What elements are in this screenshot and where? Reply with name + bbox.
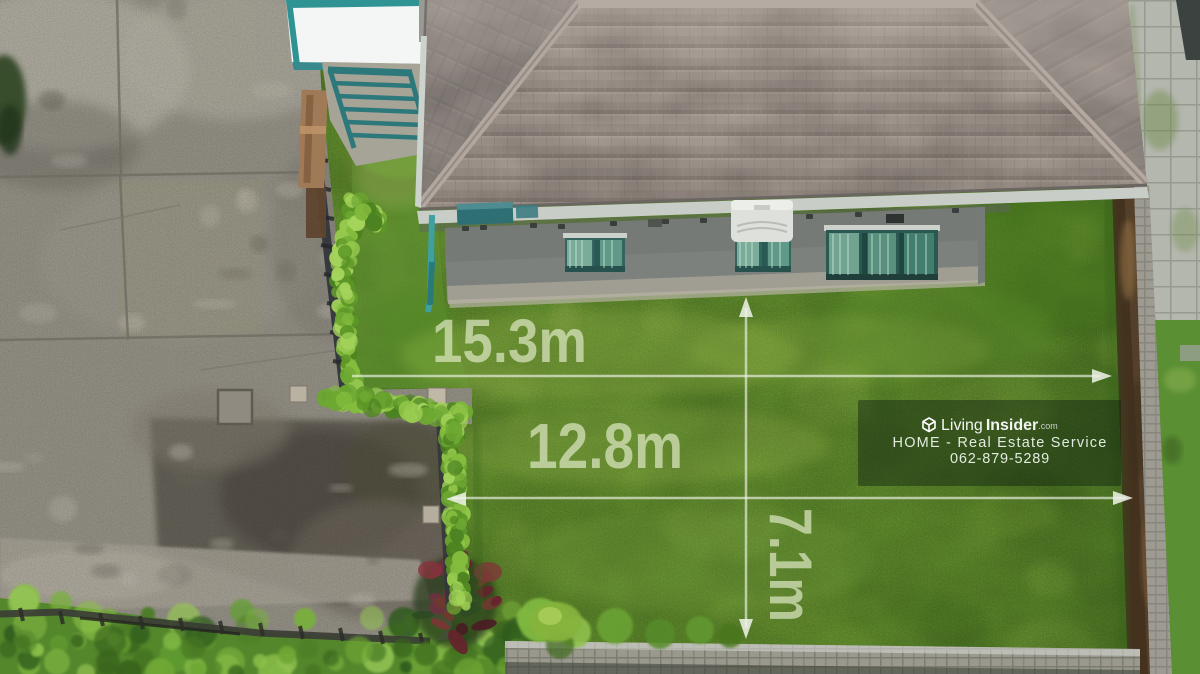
svg-text:062-879-5289: 062-879-5289 — [950, 451, 1050, 467]
svg-text:7.1m: 7.1m — [757, 508, 824, 622]
svg-text:15.3m: 15.3m — [432, 307, 587, 375]
svg-text:HOME - Real Estate Service: HOME - Real Estate Service — [893, 435, 1108, 451]
svg-text:12.8m: 12.8m — [527, 410, 683, 482]
